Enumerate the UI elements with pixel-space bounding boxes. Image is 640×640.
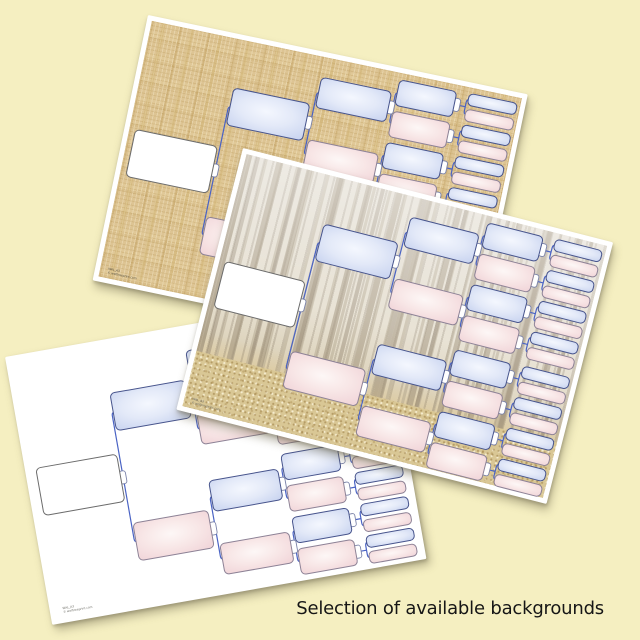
caption-text: Selection of available backgrounds [296, 598, 604, 619]
product-image: WAL_A3 © welltreeprint.com WAL_A3 © well… [0, 0, 640, 640]
